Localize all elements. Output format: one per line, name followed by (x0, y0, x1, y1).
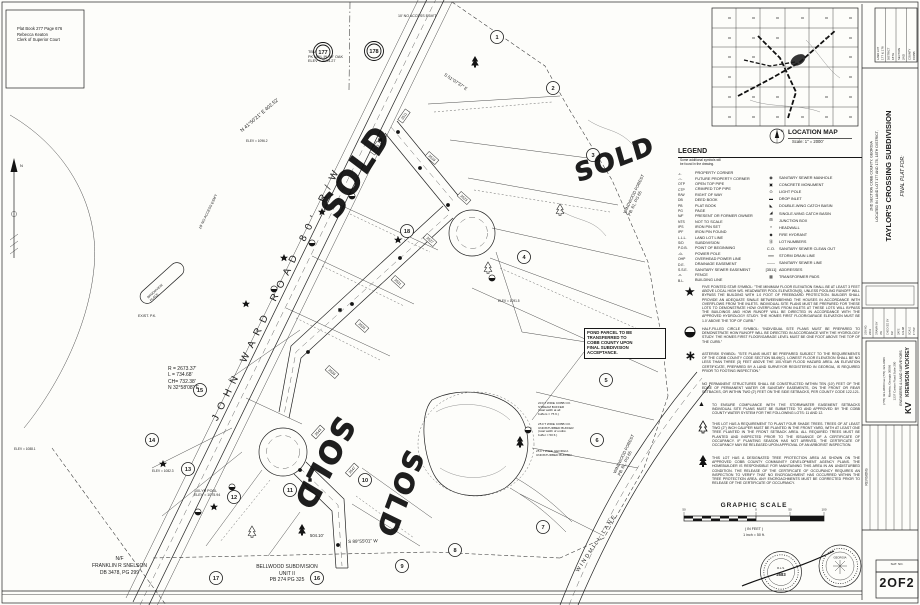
legend-label: NOT TO SCALE (695, 220, 723, 224)
legend-label: OVERHEAD POWER LINE (695, 257, 741, 261)
address-box: 3523 (457, 191, 471, 204)
spot-elevation: ELEV = 1091.5 (498, 300, 520, 304)
recorder-stamp: Plat Book 277 Page 676 Rebecca Keaton Cl… (17, 26, 62, 43)
firm-name: KREWSON VICKREY (905, 346, 911, 396)
tbm-line: ELEV = 1104.27 (308, 59, 343, 64)
plat-sheet: N (0, 0, 920, 605)
sheet-no-strip: SHT. NO. (876, 563, 918, 567)
legend-row: -○-FUTURE PROPERTY CORNER (678, 176, 753, 181)
brookview-place-road (137, 260, 186, 307)
legend-row: [3511]ADDRESSES (763, 267, 835, 274)
five-pointed-star-icon: ★ (684, 284, 696, 300)
plat-title-block: FINAL PLAT FOR: TAYLOR'S CROSSING SUBDIV… (870, 111, 907, 242)
legend-row: ∩HEADWALL (763, 224, 835, 231)
buffer-line: buffer = 50 ft.) (538, 434, 574, 438)
lot-number-circle: 14 (146, 434, 159, 447)
legend-symbol-icon: ∩ (763, 225, 779, 230)
legend-label: SINGLE-WING CATCH BASIN (779, 212, 831, 216)
exist-pk-label: EXIST. P.K. (138, 314, 156, 318)
svg-text:1: 1 (495, 35, 498, 41)
lot-number-circle: 7 (537, 521, 550, 534)
address-box: 3519 (425, 151, 439, 164)
svg-text:14: 14 (149, 438, 156, 444)
legend-left-column: -•-PROPERTY CORNER -○-FUTURE PROPERTY CO… (678, 171, 753, 283)
pool-elev-line: ELEV = 1075.94 (194, 493, 220, 497)
buffer-note: 25 FT WIDE GEORGIA UNDISTURBED BUFFER (536, 450, 572, 457)
legend-label: PRESENT OR FORMER OWNER (695, 214, 753, 218)
lot-number-circle: 18 (401, 225, 414, 238)
legend-symbol-icon: [3511] (763, 268, 779, 273)
legend-symbol-icon: ◉ (763, 176, 779, 181)
legend-row: ▣CONCRETE MONUMENT (763, 182, 835, 189)
lot-number-circle: 5 (600, 374, 613, 387)
spot-elevation: ELEV = 1082.3 (152, 470, 174, 474)
legend-symbol-icon: ▬ (763, 197, 779, 202)
legend-abbr: OHP (678, 257, 695, 261)
spot-elevation: ELEV = 1088.1 (14, 448, 36, 452)
note-star: FIVE POINTED STAR SYMBOL: "THE MINIMUM F… (702, 285, 860, 323)
legend-abbr: B.L. (678, 279, 695, 283)
svg-text:9: 9 (400, 564, 403, 570)
svg-text:18: 18 (404, 229, 410, 235)
legend-note-line: be found in the drawing. (680, 163, 721, 167)
address-box: 3539 (325, 365, 339, 378)
legend-label: IRON PIN SET (695, 225, 720, 229)
note-triangle: TO ENSURE COMPLIANCE WITH THE STORMWATER… (712, 403, 860, 416)
legend-label: LAND LOT LINE (695, 236, 723, 240)
land-lot-circle: 178 (365, 42, 384, 61)
title-block-frame (862, 4, 918, 600)
legend-label: FUTURE PROPERTY CORNER (695, 177, 750, 181)
plat-location-line: 2ND SECTION COBB COUNTY, GEORGIA (870, 140, 874, 210)
legend-label: DROP INLET (779, 197, 802, 201)
legend-label: FIRE HYDRANT (779, 233, 807, 237)
svg-text:2: 2 (551, 86, 554, 92)
legend-abbr: -x- (678, 273, 695, 277)
legend-row: S.S.E.SANITARY SEWER EASEMENT (678, 267, 753, 272)
upper-cul-de-sac (449, 210, 495, 256)
legend-abbr: PG (678, 209, 695, 213)
distance-label: 504.10' (310, 534, 324, 539)
legend-label: SUBDIVISION (695, 241, 719, 245)
corner-label: DISTRICT (887, 47, 891, 60)
location-map-title: LOCATION MAP (788, 129, 838, 137)
corner-value: 18TH (891, 53, 895, 60)
address-box: 3535 (355, 319, 369, 332)
legend-abbr: N/F (678, 214, 695, 218)
triangle-icon: ▲ (698, 401, 705, 408)
svg-text:8: 8 (453, 548, 456, 554)
north-arrow-icon: N (10, 158, 23, 258)
svg-text:17: 17 (213, 576, 219, 582)
corner-label: SECTION (897, 48, 901, 60)
curve-line: N 32°58'08" E (168, 385, 199, 391)
legend-symbol-icon: ◢ (763, 211, 779, 216)
legend-row: ◣DOUBLE-WING CATCH BASIN (763, 203, 835, 210)
graphic-scale-feet: ( IN FEET ) (684, 527, 824, 531)
legend-symbol-icon: C.O. (763, 247, 779, 252)
legend-abbr: PB (678, 204, 695, 208)
legend-label: POINT OF BEGINNING (695, 246, 735, 250)
address-box: 3527 (423, 233, 437, 246)
seal-text: R.L.S. (777, 566, 785, 570)
open-tree-icon (697, 420, 709, 434)
pond-parcel-note: POND PARCEL TO BE TRANSFERRED TO COBB CO… (584, 328, 666, 359)
legend-row: ◢SINGLE-WING CATCH BASIN (763, 210, 835, 217)
legend-label: SANITARY SEWER EASEMENT (695, 268, 751, 272)
info-value: KV (890, 331, 894, 335)
legend-symbol-icon: —— (763, 261, 779, 266)
legend-abbr: S.S.E. (678, 268, 695, 272)
lot-number-circle: 9 (396, 560, 409, 573)
snelson-line: DB 3478, PG 299 (72, 570, 167, 577)
final-plat-for-label: FINAL PLAT FOR: (900, 155, 906, 197)
no-access-label: 10' NO ACCESS ESM'T (398, 14, 436, 18)
lot-number-circle: 8 (449, 544, 462, 557)
asterisk-icon: ∗ (685, 348, 696, 364)
note-general: NO PERMANENT STRUCTURES SHALL BE CONSTRU… (702, 382, 860, 395)
legend-label: TRANSFORMER PADS (779, 275, 819, 279)
legend-symbol-icon: ⊙ (763, 190, 779, 195)
lot-number-circle: 1 (491, 31, 504, 44)
adjoiner-snelson: N/F FRANKLIN R SNELSON DB 3478, PG 299 (72, 556, 167, 576)
legend-label: SANITARY SEWER LINE (779, 261, 822, 265)
firm-address: Marietta, Georgia 30066 (888, 364, 892, 397)
legend-abbr: DB (678, 198, 695, 202)
legend-label: RIGHT OF WAY (695, 193, 722, 197)
info-value: 1"=50' (912, 327, 916, 335)
legend-label: ADDRESSES (779, 268, 802, 272)
legend-label: JUNCTION BOX (779, 219, 807, 223)
legend-abbr: P.O.B. (678, 246, 695, 250)
info-value: 6-9-98 (901, 326, 905, 335)
legend-title: LEGEND (678, 148, 862, 158)
signature-stroke (742, 551, 834, 586)
buffer-line: UNDISTURBED BUFFER (536, 454, 572, 458)
seal-text: GEORGIA (833, 556, 846, 560)
legend-label: HEADWALL (779, 226, 800, 230)
address-box: 3531 (391, 275, 405, 288)
graphic-scale-title: GRAPHIC SCALE (684, 502, 824, 510)
bearing-label: S 89°55'01" W (348, 538, 378, 544)
legend-label: SANITARY SEWER CLEAN OUT (779, 247, 835, 251)
legend-abbr: IPF (678, 230, 695, 234)
legend-row: ⑮LOT NUMBERS (763, 238, 835, 245)
legend-abbr: -⊙- (678, 252, 695, 256)
legend-label: LOT NUMBERS (779, 240, 806, 244)
info-table: JOB NO. 2411 DRAWN BY JW CHECKED BY KV D… (865, 318, 916, 335)
legend-abbr: OTP (678, 182, 695, 186)
info-value: 2411 (868, 329, 872, 335)
lot-number-circle: 12 (228, 491, 241, 504)
legend-label: DEED BOOK (695, 198, 718, 202)
info-value: JW (879, 331, 883, 335)
legend-symbol-icon: ⊞ (763, 218, 779, 223)
buffer-note: 25 FT WIDE COBB CO. UNDISTURBED BUFFER (… (538, 423, 574, 437)
svg-text:13: 13 (185, 467, 191, 473)
buffer-note: 20 FT WIDE COBB CO. STREAM BUFFER (total… (538, 402, 571, 416)
solid-tree-icon (697, 454, 709, 468)
graphic-scale-ratio: 1 inch = 50 ft. (684, 533, 824, 537)
svg-text:6: 6 (595, 438, 598, 444)
legend-label: IRON PIN FOUND (695, 230, 726, 234)
legend-label: FENCE (695, 273, 708, 277)
west-parcel-boundary (10, 115, 166, 605)
legend-abbr: NTS (678, 220, 695, 224)
stamp-line: Clerk of Superior Court (17, 37, 62, 43)
legend-abbr: -○- (678, 177, 695, 181)
location-map: N (712, 8, 858, 143)
plat-location-line: LOCATED IN LAND LOT 177 AND 178, 18TH DI… (875, 130, 879, 221)
corner-label: LAND LOT (876, 46, 880, 60)
legend-label: PROPERTY CORNER (695, 171, 733, 175)
legend-label: STORM DRAIN LINE (779, 254, 815, 258)
firm-block: KV KREWSON VICKREY ENGINEERS & LAND SURV… (882, 346, 913, 414)
legend-label: DRAINAGE EASEMENT (695, 262, 737, 266)
half-filled-circle-icon (684, 326, 696, 338)
buffer-line: buffers = 75 ft.) (538, 413, 571, 417)
svg-text:178: 178 (369, 49, 378, 55)
lot-number-circle: 6 (591, 434, 604, 447)
georgia-seal-icon: GEORGIA (819, 545, 861, 587)
snelson-line: N/F (72, 556, 167, 563)
tbm-note: TBM PK NAIL IN 30" OAK ELEV = 1104.27 (308, 50, 343, 64)
legend-symbol-icon: ▣ (763, 183, 779, 188)
legend-row: ⊞JUNCTION BOX (763, 217, 835, 224)
legend-row: C.O.SANITARY SEWER CLEAN OUT (763, 245, 835, 252)
legend-label: PLAT BOOK (695, 204, 716, 208)
note-solid-tree: THIS LOT HAS A DESIGNATED TREE PROTECTIO… (712, 456, 860, 485)
note-asterisk: ASTERISK SYMBOL: "SITE PLANS MUST BE PRE… (702, 352, 860, 373)
lot-number-circle: 2 (547, 82, 560, 95)
bellwood-line: PB 274 PG 325 (238, 577, 336, 584)
curve-line: CH= 732.38' (168, 379, 199, 385)
pool-elev-note: 100-YR POOL ELEV = 1075.94 (194, 489, 220, 497)
legend-note: Some additional symbols will be found in… (680, 159, 721, 166)
svg-text:10: 10 (362, 478, 368, 484)
sheet-number: 2OF2 (876, 576, 918, 591)
legend-abbr: R/W (678, 193, 695, 197)
legend-row: B.L.BUILDING LINE (678, 278, 753, 283)
address-box: 3547 (345, 463, 358, 477)
note-half-circle: HALF-FILLED CIRCLE SYMBOL: "INDIVIDUAL S… (702, 327, 860, 344)
location-map-scale: Scale: 1" = 2000' (792, 140, 824, 145)
firm-type: ENGINEERS & LAND SURVEYORS (899, 350, 903, 406)
corner-value: 177 & 178 (881, 46, 885, 60)
corner-label: COUNTY (908, 48, 912, 60)
pond-note-line: ACCEPTANCE. (587, 351, 663, 356)
spot-elevation: ELEV = 1096.2 (246, 140, 268, 144)
lot-number-circle: 13 (182, 463, 195, 476)
legend-abbr: D.E. (678, 263, 695, 267)
svg-text:5: 5 (604, 378, 607, 384)
legend-row: ——SANITARY SEWER LINE (763, 260, 835, 267)
legend-label: OPEN TOP PIPE (695, 182, 724, 186)
legend-abbr: IPS (678, 225, 695, 229)
legend-label: LIGHT POLE (779, 190, 801, 194)
legend-abbr: L.L.L. (678, 236, 695, 240)
legend-row: N/FPRESENT OR FORMER OWNER (678, 214, 753, 219)
legend-abbr: S/D (678, 241, 695, 245)
legend-right-column: ◉SANITARY SEWER MANHOLE ▣CONCRETE MONUME… (763, 175, 835, 281)
legend-symbol-icon: ══ (763, 254, 779, 259)
firm-address: 1237 Canton Road Suite 200 (893, 361, 897, 400)
adjoiner-bellwood: BELLWOOD SUBDIVISION UNIT II PB 274 PG 3… (238, 564, 336, 584)
legend-row: ▦TRANSFORMER PADS (763, 274, 835, 281)
stamp-line: Plat Book 277 Page 676 (17, 26, 62, 32)
legend-abbr: -•- (678, 172, 695, 176)
legend-label: PAGE (695, 209, 705, 213)
legend-row: ══STORM DRAIN LINE (763, 253, 835, 260)
curve-data: R = 2673.37' L = 734.68' CH= 732.38' N 3… (168, 366, 199, 391)
svg-text:7: 7 (541, 525, 544, 531)
legend-abbr: CTP (678, 188, 695, 192)
north-label: N (20, 163, 23, 168)
compass-north-label: N (781, 129, 784, 133)
legend-label: BUILDING LINE (695, 278, 722, 282)
address-box: 3511 (398, 109, 410, 123)
legend-row: ⊙LIGHT POLE (763, 189, 835, 196)
snelson-line: FRANKLIN R SNELSON (72, 563, 167, 570)
legend-symbol-icon: ▦ (763, 275, 779, 280)
lot-number-circle: 10 (359, 474, 372, 487)
legend-symbol-icon: ◣ (763, 204, 779, 209)
legend-label: DOUBLE-WING CATCH BASIN (779, 204, 833, 208)
legend-label: SANITARY SEWER MANHOLE (779, 176, 832, 180)
legend-label: CRIMPED TOP PIPE (695, 187, 731, 191)
firm-logo: KV (903, 402, 913, 414)
lot-number-circle: 4 (518, 251, 531, 264)
legend-label: CONCRETE MONUMENT (779, 183, 824, 187)
plat-title: TAYLOR'S CROSSING SUBDIVISION (884, 111, 893, 242)
note-open-tree: THIS LOT HAS A REQUIREMENT TO PLANT FOUR… (712, 422, 860, 447)
lot-number-circle: 17 (210, 572, 223, 585)
legend-row: ◆FIRE HYDRANT (763, 231, 835, 238)
corner-value: 2ND (902, 53, 906, 60)
svg-text:12: 12 (231, 495, 237, 501)
recorder-stamp-box (6, 10, 84, 88)
corner-value: COBB (912, 51, 916, 60)
legend-row: ◉SANITARY SEWER MANHOLE (763, 175, 835, 182)
legend-label: POWER POLE (695, 252, 721, 256)
legend-symbol-icon: ◆ (763, 233, 779, 238)
compass-icon: N (770, 129, 784, 143)
legend-symbol-icon: ⑮ (763, 240, 779, 245)
firm-phone: (770) 421-9600 Fax (770) 421-9606 (882, 357, 886, 405)
revisions-label: REVISIONS (865, 468, 869, 485)
legend-row: ▬DROP INLET (763, 196, 835, 203)
